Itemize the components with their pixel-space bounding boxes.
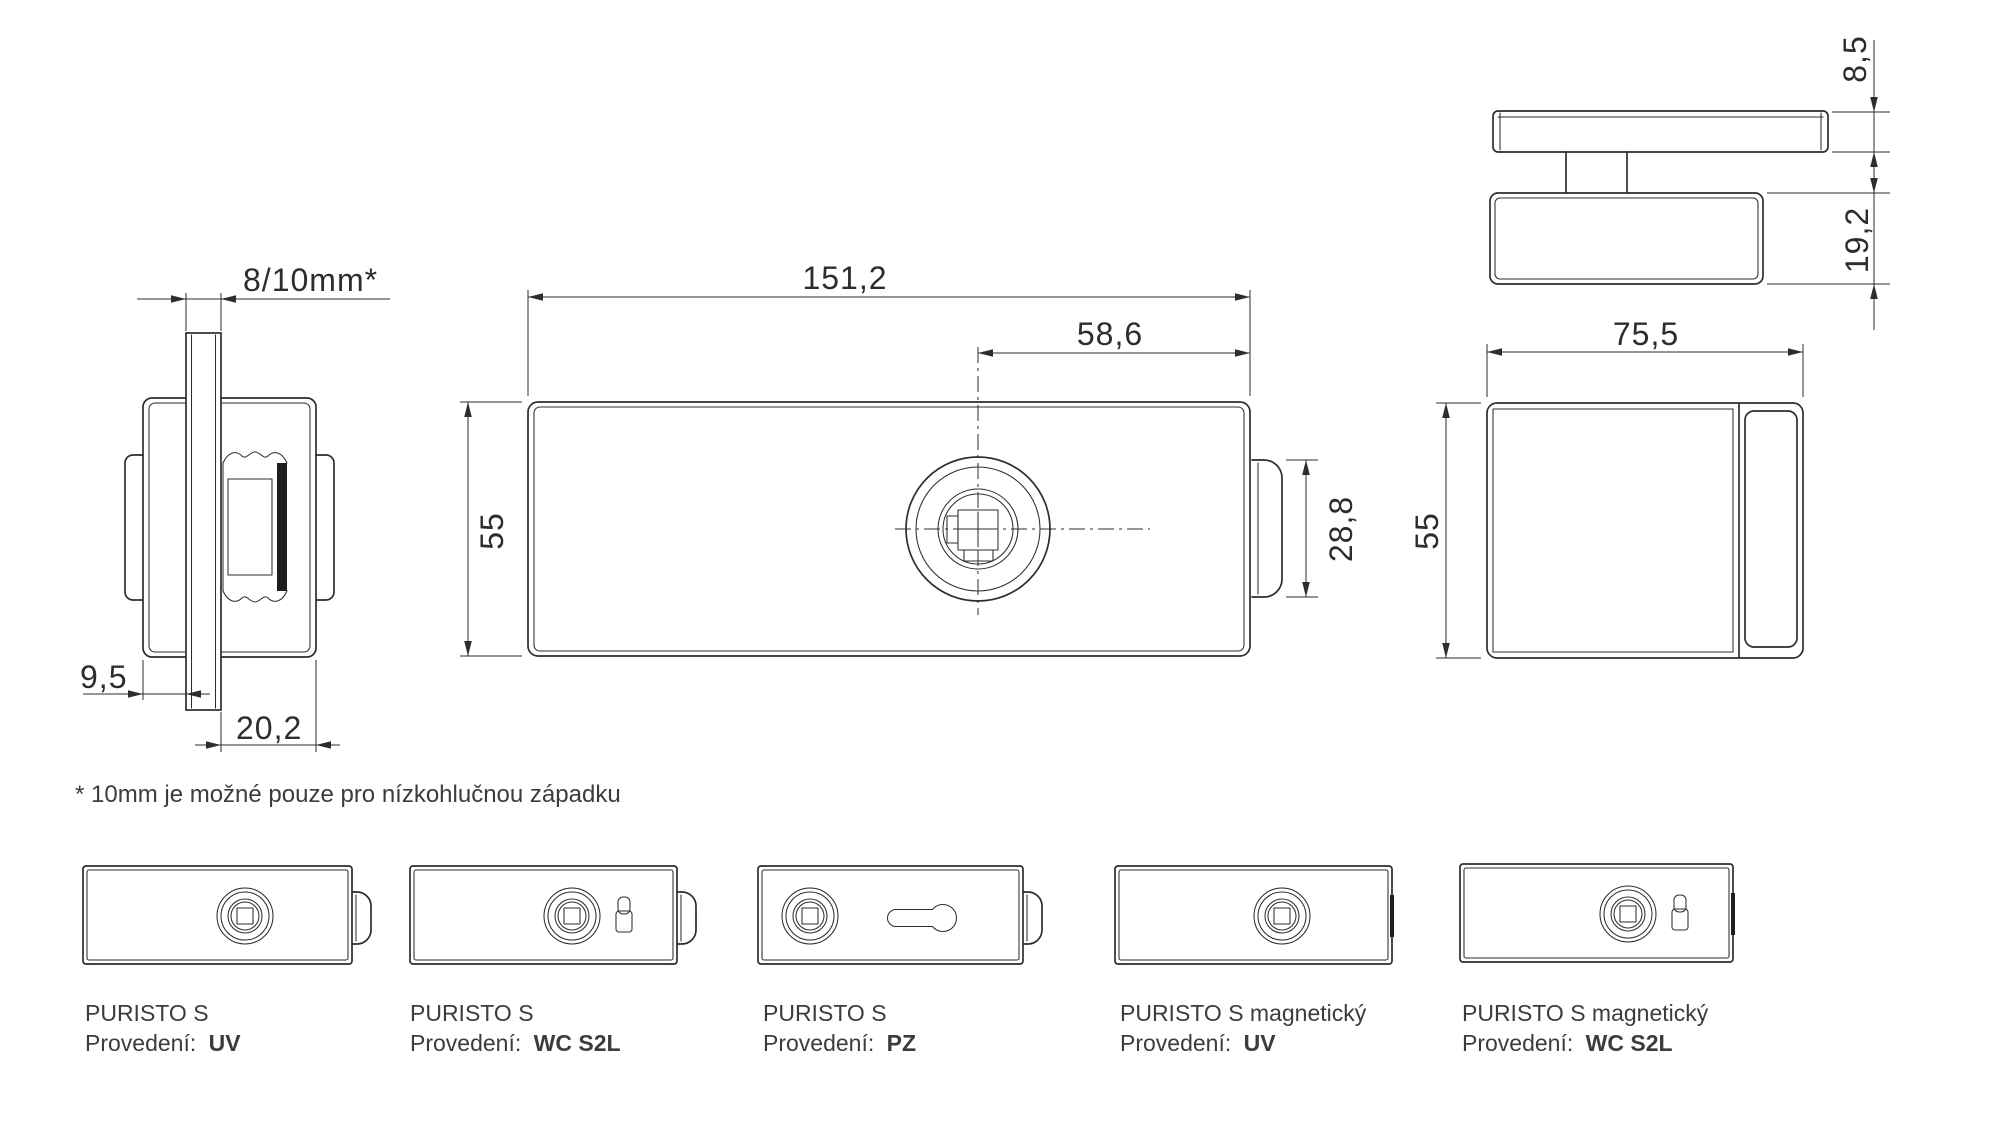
dim-glass-thickness: 8/10mm* xyxy=(137,262,390,331)
variant4-finish: Provedení: UV xyxy=(1120,1030,1276,1056)
right-view: 75,5 55 xyxy=(1409,316,1803,658)
dim-glass-thickness-text: 8/10mm* xyxy=(243,262,378,298)
variant-puristo-s-uv: PURISTO S Provedení: UV xyxy=(83,866,371,1056)
dim-body-depth-text: 20,2 xyxy=(236,710,302,746)
dim-cover-thickness: 8,5 xyxy=(1832,35,1890,330)
top-view: 8,5 19,2 xyxy=(1490,35,1890,330)
right-view-latch-face xyxy=(1745,411,1797,647)
footnote: * 10mm je možné pouze pro nízkohlučnou z… xyxy=(75,781,621,808)
dim-latch-height-text: 28,8 xyxy=(1323,496,1359,562)
dim-right-width: 75,5 xyxy=(1487,316,1803,397)
dim-spindle-to-edge: 58,6 xyxy=(978,316,1250,357)
variant4-magnet-strike xyxy=(1390,895,1394,937)
dim-body-thickness: 19,2 xyxy=(1767,178,1890,299)
front-view: 151,2 58,6 55 28,8 xyxy=(460,260,1359,656)
variant2-latch xyxy=(677,892,696,944)
side-view-left-latch xyxy=(125,455,143,600)
side-view: 8/10mm* 9,5 20,2 xyxy=(80,262,390,752)
variant2-knob xyxy=(544,888,600,944)
dim-right-height: 55 xyxy=(1409,403,1481,658)
variant2-finish-label: Provedení: xyxy=(410,1030,521,1056)
variant3-name: PURISTO S xyxy=(763,1000,887,1026)
variant3-latch xyxy=(1023,892,1042,944)
variant-puristo-s-pz: PURISTO S Provedení: PZ xyxy=(758,866,1042,1056)
variant3-finish-value: PZ xyxy=(887,1030,916,1056)
side-view-glass-panel xyxy=(186,333,221,710)
dim-body-thickness-text: 19,2 xyxy=(1839,207,1875,273)
side-view-right-latch xyxy=(316,455,334,600)
top-view-stem xyxy=(1566,152,1627,193)
variant3-knob xyxy=(782,888,838,944)
technical-drawing-page: 8/10mm* 9,5 20,2 xyxy=(0,0,2000,1144)
front-view-spindle-knob xyxy=(895,347,1150,615)
variant4-name: PURISTO S magnetický xyxy=(1120,1000,1367,1026)
front-view-latch xyxy=(1252,460,1282,597)
variant1-name: PURISTO S xyxy=(85,1000,209,1026)
dim-cover-thickness-text: 8,5 xyxy=(1837,35,1873,82)
variant5-finish: Provedení: WC S2L xyxy=(1462,1030,1673,1056)
variant1-finish-value: UV xyxy=(209,1030,242,1056)
dim-front-height: 55 xyxy=(460,402,522,656)
dim-glass-offset-text: 9,5 xyxy=(80,659,127,695)
right-view-body xyxy=(1487,403,1803,658)
variant5-finish-label: Provedení: xyxy=(1462,1030,1573,1056)
variant5-knob xyxy=(1600,886,1656,942)
variant3-finish: Provedení: PZ xyxy=(763,1030,916,1056)
dim-front-height-text: 55 xyxy=(474,512,510,550)
dim-right-height-text: 55 xyxy=(1409,512,1445,550)
side-view-clamp-mechanism xyxy=(223,452,287,602)
puristo-s-technical-drawing: 8/10mm* 9,5 20,2 xyxy=(0,0,2000,1144)
variant5-name: PURISTO S magnetický xyxy=(1462,1000,1709,1026)
variant1-knob xyxy=(217,888,273,944)
top-view-cover-plate xyxy=(1493,111,1828,152)
variant-puristo-s-wc-s2l: PURISTO S Provedení: WC S2L xyxy=(410,866,696,1056)
variant-puristo-s-magneticky-wc-s2l: PURISTO S magnetický Provedení: WC S2L xyxy=(1460,864,1735,1056)
side-view-body xyxy=(143,398,316,657)
variant1-finish: Provedení: UV xyxy=(85,1030,241,1056)
variant2-thumbturn-pin xyxy=(616,897,632,932)
variant1-latch xyxy=(352,892,371,944)
variant2-finish-value: WC S2L xyxy=(534,1030,621,1056)
variant2-finish: Provedení: WC S2L xyxy=(410,1030,621,1056)
variant4-finish-value: UV xyxy=(1244,1030,1277,1056)
variant4-finish-label: Provedení: xyxy=(1120,1030,1231,1056)
top-view-lock-body xyxy=(1490,193,1763,284)
dim-right-width-text: 75,5 xyxy=(1613,316,1679,352)
variant-puristo-s-magneticky-uv: PURISTO S magnetický Provedení: UV xyxy=(1115,866,1394,1056)
variant3-finish-label: Provedení: xyxy=(763,1030,874,1056)
variant5-magnet-strike xyxy=(1731,893,1735,935)
variant5-finish-value: WC S2L xyxy=(1586,1030,1673,1056)
dim-front-width-text: 151,2 xyxy=(802,260,887,296)
dim-latch-height: 28,8 xyxy=(1286,460,1359,597)
variant5-thumbturn-pin xyxy=(1672,895,1688,930)
variant3-keyhole xyxy=(888,905,957,932)
variant2-name: PURISTO S xyxy=(410,1000,534,1026)
variant1-finish-label: Provedení: xyxy=(85,1030,196,1056)
dim-spindle-to-edge-text: 58,6 xyxy=(1077,316,1143,352)
variant4-knob xyxy=(1254,888,1310,944)
